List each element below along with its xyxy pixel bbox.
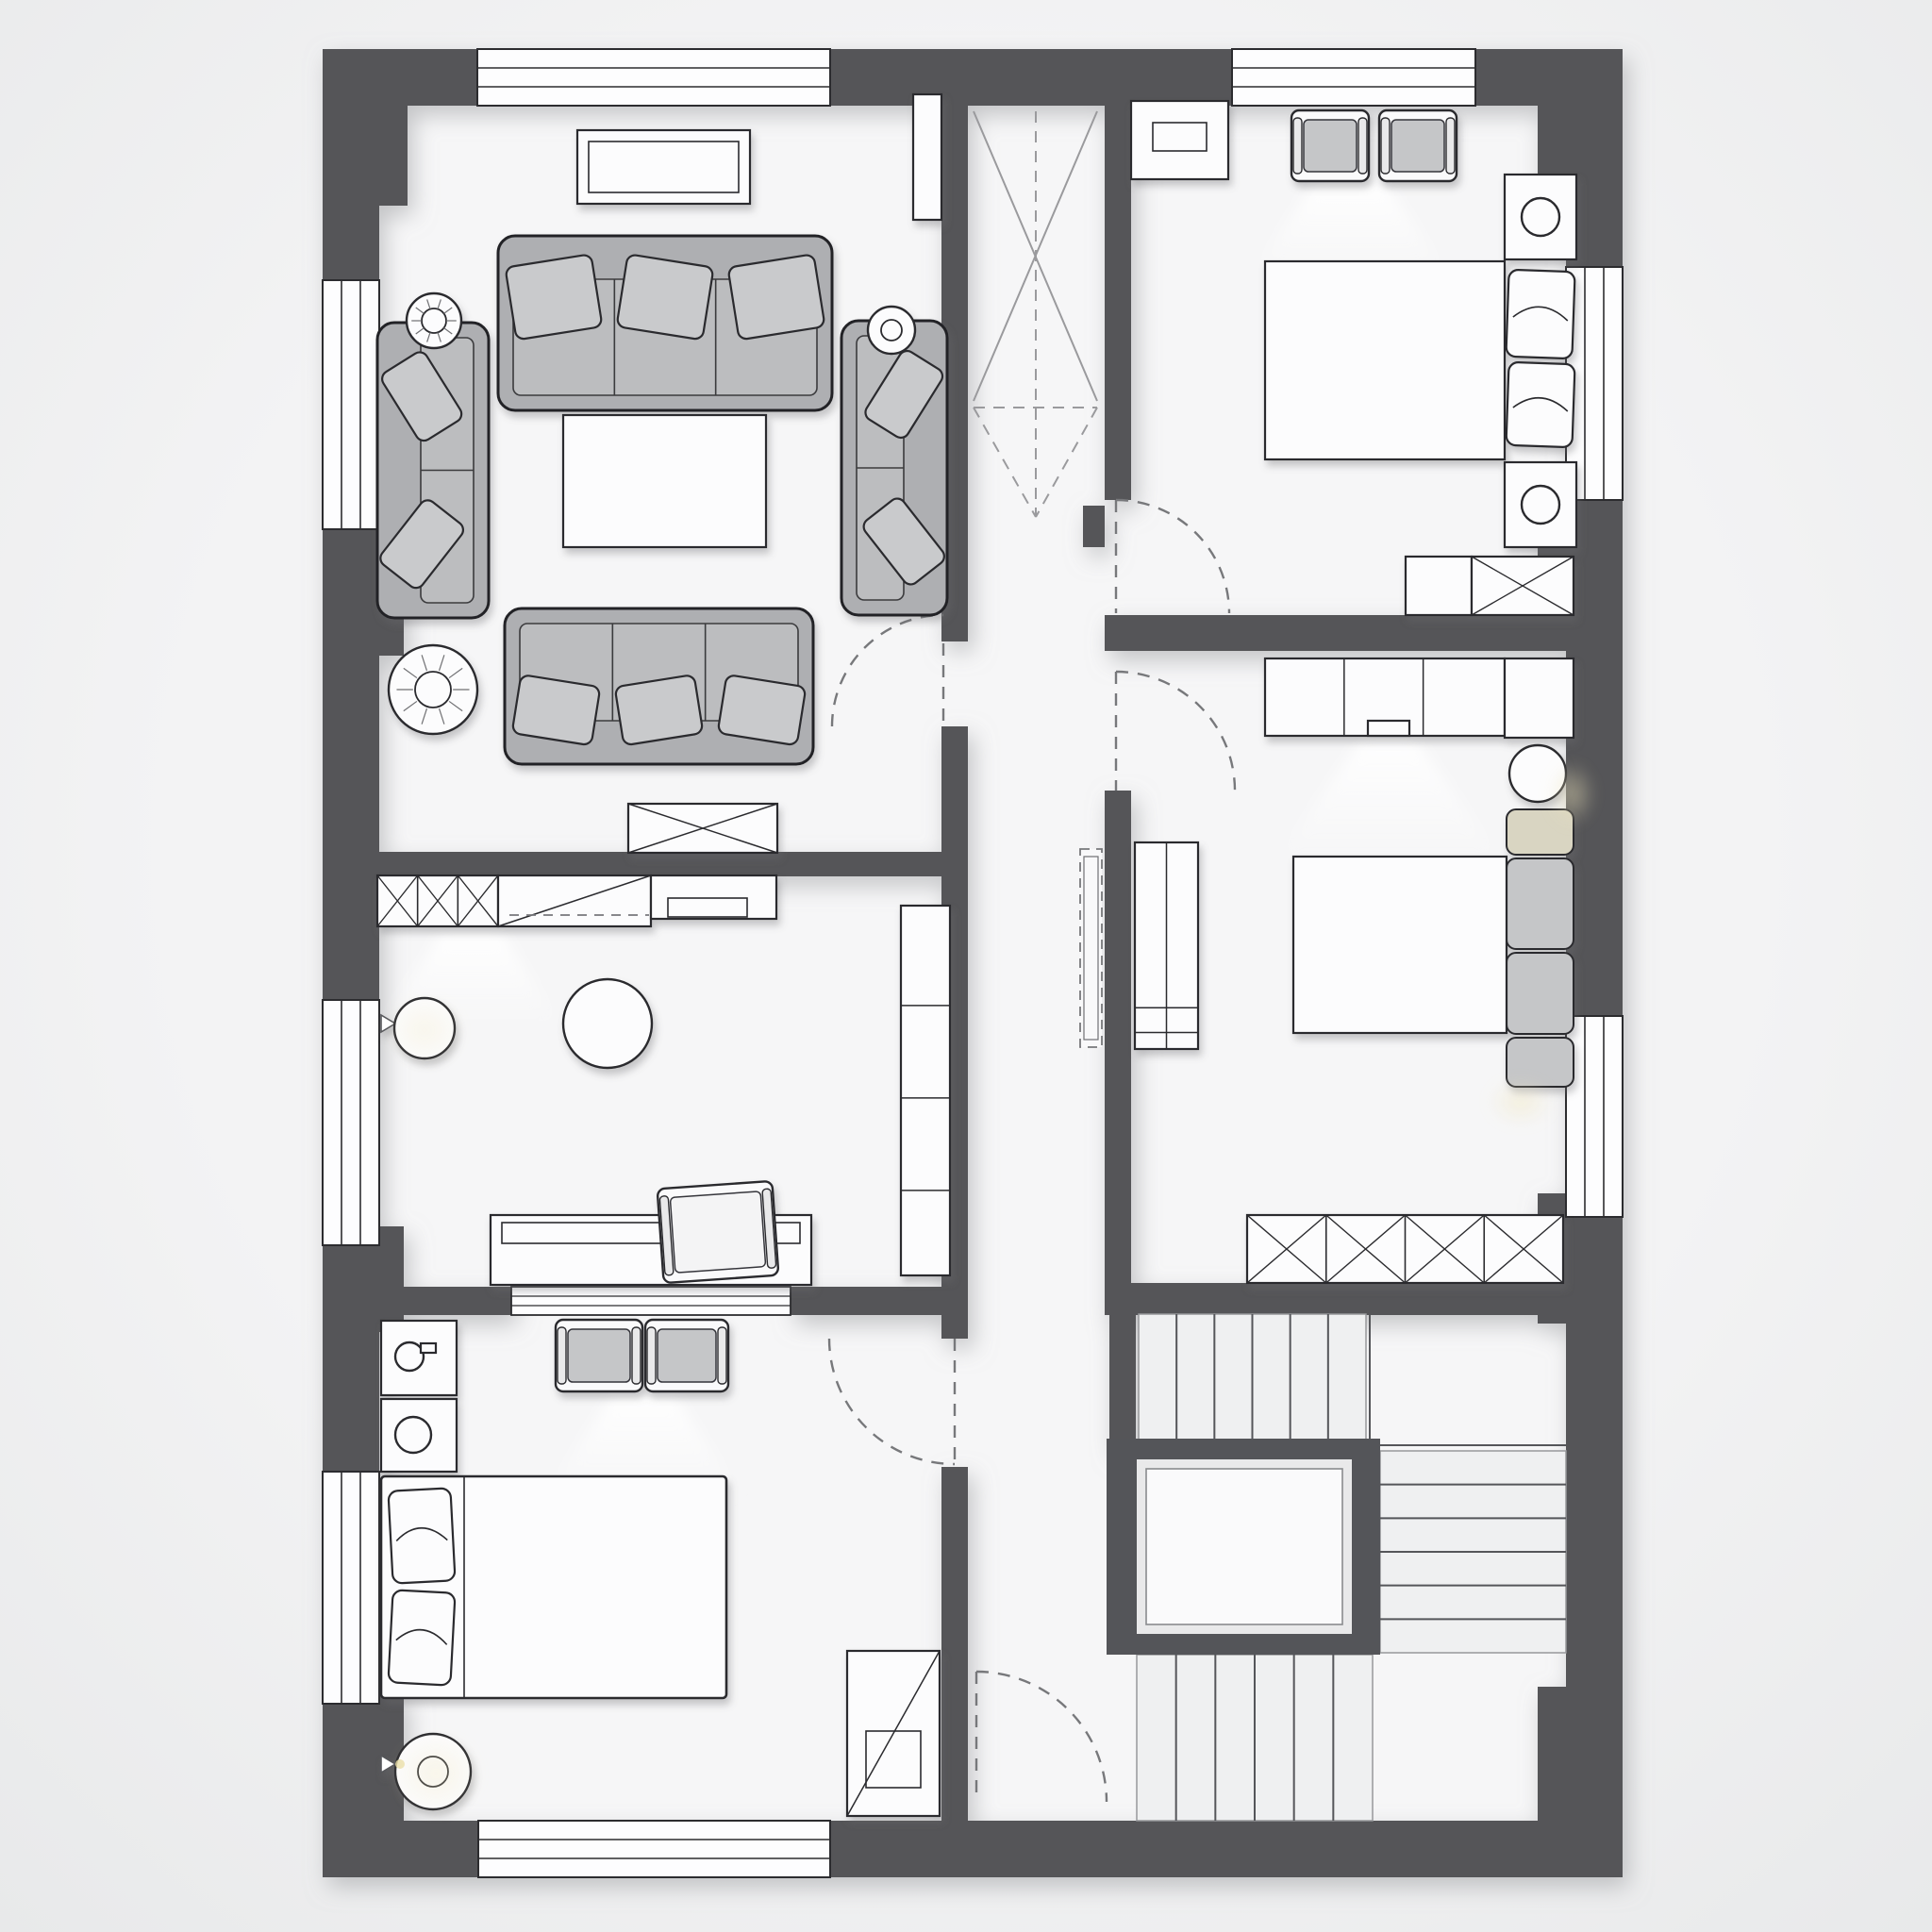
stair-flight-north	[1139, 1314, 1366, 1450]
living-sofa-left	[377, 323, 489, 618]
stair-flight-south	[1137, 1655, 1373, 1821]
bedroom-bl-corner-wardrobe	[847, 1651, 940, 1816]
bedroom-mr-bed	[1293, 857, 1507, 1033]
window-icon	[323, 1000, 379, 1245]
bedroom-bl-chair-left	[556, 1320, 642, 1391]
window-icon	[1566, 1016, 1623, 1217]
stair-flight-east	[1380, 1451, 1566, 1653]
bedroom-bl-chair-right	[645, 1320, 728, 1391]
bedroom-bl-vanity-tap	[421, 1343, 436, 1353]
floor-plan-canvas	[0, 0, 1932, 1932]
wall-pier	[323, 49, 408, 206]
bedroom-mr-corner-shelf	[1505, 658, 1574, 738]
bedroom-tr-lamp-top	[1522, 198, 1559, 236]
wall	[1105, 791, 1131, 1283]
bedroom-mr-wardrobe-x	[1247, 1215, 1563, 1283]
bedroom-bl-vanity-basin	[395, 1342, 424, 1371]
warm-glow-round-chair	[1547, 760, 1596, 828]
bedroom-tr-wardrobe-x	[1472, 557, 1574, 615]
bedroom-mr-headboard-cushion-3	[1507, 953, 1574, 1034]
study-tall-cabinet	[901, 906, 950, 1275]
living-sofa-right	[841, 321, 947, 615]
living-floor-lamp	[389, 645, 477, 734]
bedroom-bl-bed	[381, 1476, 726, 1698]
living-tv-console	[577, 130, 750, 204]
living-sofa-bottom	[505, 608, 813, 764]
floor-plan	[0, 0, 1932, 1932]
bedroom-tr-pillow-bottom	[1506, 362, 1574, 447]
wall	[1105, 615, 1566, 651]
wall	[941, 1467, 968, 1825]
bedroom-tr-pillow-top	[1506, 270, 1574, 358]
wall	[1105, 106, 1131, 500]
living-side-table-lamp-left	[407, 293, 461, 348]
warm-glow-cushions	[1487, 1077, 1555, 1126]
bedroom-bl-stool	[395, 1417, 431, 1453]
study-pouf	[563, 979, 652, 1068]
bedroom-tr-bed	[1265, 261, 1505, 459]
bedroom-mr-ceiling-light	[1368, 721, 1409, 736]
glass-partition	[511, 1287, 791, 1315]
bedroom-mr-dresser	[1135, 842, 1198, 1049]
living-sideboard-x	[628, 804, 777, 853]
wall	[941, 726, 968, 852]
wall	[1083, 506, 1105, 547]
study-closet-x	[377, 875, 498, 926]
wall	[1105, 1283, 1566, 1315]
living-coffee-table	[563, 415, 766, 547]
warm-glow-bl-lamp	[389, 1732, 483, 1815]
stair-void	[1107, 1439, 1380, 1655]
window-icon	[323, 1472, 379, 1704]
wall-pier	[1538, 1687, 1623, 1827]
hall-console	[1080, 849, 1102, 1047]
bedroom-tr-foot-bench	[1406, 557, 1472, 615]
bedroom-mr-headboard-cushion-2	[1507, 858, 1574, 949]
living-side-table-lamp-right	[868, 307, 915, 354]
bedroom-tr-lamp-bottom	[1522, 486, 1559, 524]
window-icon	[477, 49, 830, 106]
study-wardrobe	[651, 875, 776, 919]
window-icon	[323, 280, 379, 529]
living-sofa-top	[498, 236, 832, 410]
bedroom-tr-wall-cabinet	[1131, 101, 1228, 179]
bedroom-tr-armchair-left	[1291, 110, 1369, 181]
wall	[379, 852, 968, 876]
bedroom-tr-armchair-right	[1379, 110, 1457, 181]
window-icon	[1232, 49, 1475, 106]
study-open-closet	[498, 875, 651, 926]
wall	[1109, 1315, 1136, 1447]
living-corner-cabinet	[913, 94, 941, 220]
window-icon	[478, 1821, 830, 1877]
wall	[791, 1287, 968, 1315]
warm-glow-study-table	[383, 994, 466, 1066]
study-desk-chair	[658, 1181, 779, 1283]
